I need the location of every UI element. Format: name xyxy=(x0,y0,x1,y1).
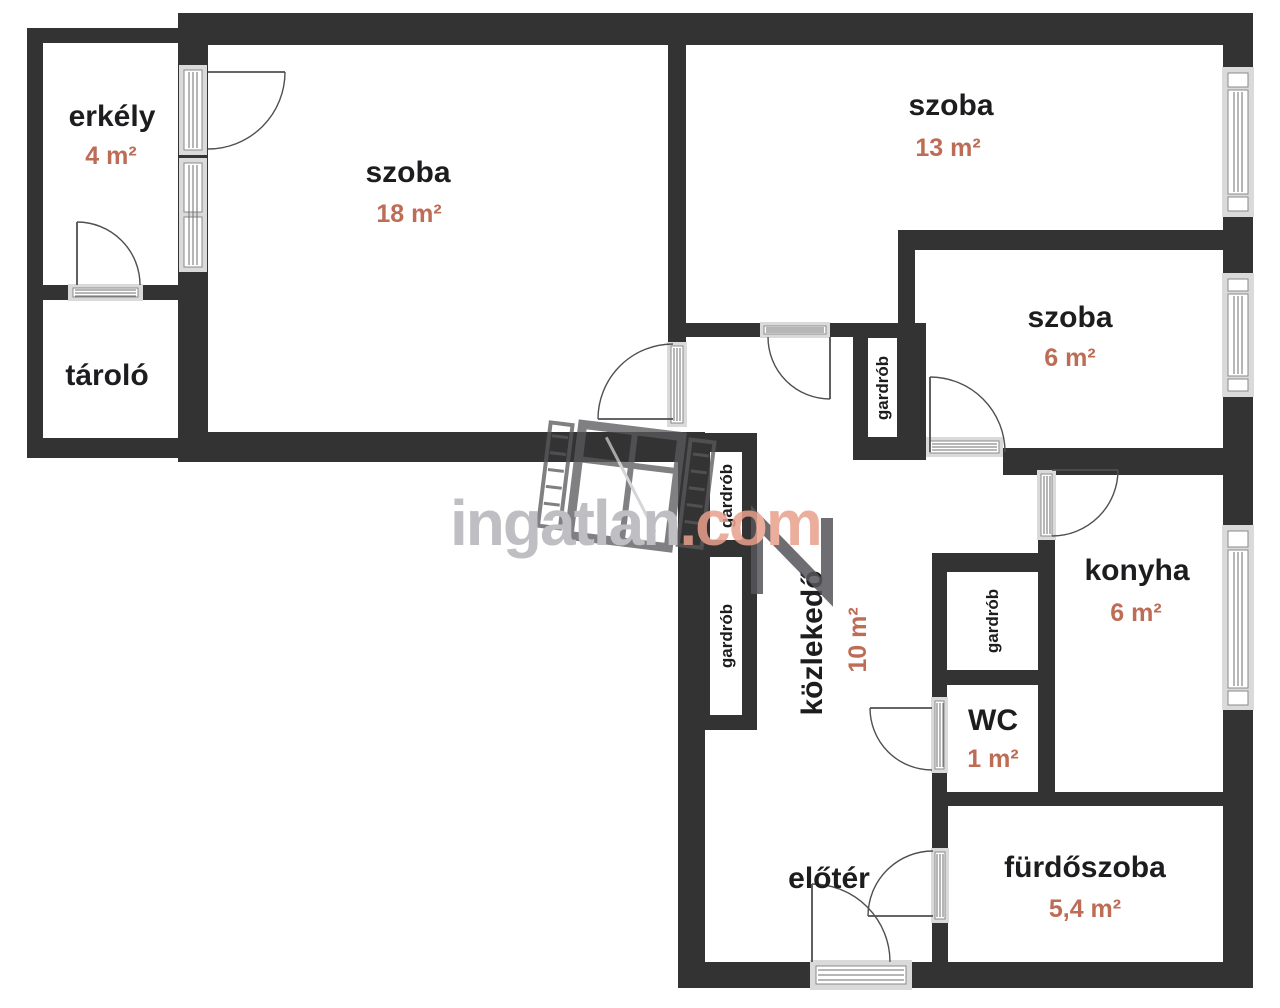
room-label-konyha: konyha xyxy=(1084,554,1189,587)
wall-tarolo-bottom xyxy=(27,438,178,458)
wall-erkely-left xyxy=(27,28,43,458)
szoba18-door-strip xyxy=(667,342,687,427)
room-label-eloter: előtér xyxy=(788,862,870,895)
wall-gardrob4-top xyxy=(932,553,1055,572)
furdo-door-strip xyxy=(931,848,949,923)
wall-szoba6-konyha xyxy=(1003,448,1223,475)
watermark-brand: ingatlan xyxy=(450,487,679,559)
konyha-door-strip xyxy=(1037,470,1056,540)
closet-label-4: gardrób xyxy=(983,589,1002,653)
wall-eloter-furdo xyxy=(932,923,948,962)
room-label-furdoszoba: fürdőszoba xyxy=(1004,851,1166,884)
watermark-tld: .com xyxy=(679,487,820,559)
room-area-erkely: 4 m² xyxy=(85,142,136,170)
szoba13-window xyxy=(1222,67,1254,217)
wall-right xyxy=(1223,217,1253,273)
konyha-window xyxy=(1222,525,1254,710)
wall-bottom xyxy=(912,962,1253,988)
furdo-door-arc xyxy=(868,851,933,916)
room-area-wc: 1 m² xyxy=(967,745,1018,773)
wall-gardrob4-wc xyxy=(932,670,1055,685)
room-area-konyha: 6 m² xyxy=(1110,599,1161,627)
balcony-window xyxy=(179,158,207,272)
wall-erkely-top xyxy=(27,28,178,43)
wall-right xyxy=(1223,397,1253,525)
szoba13-door-arc xyxy=(768,337,830,399)
wall-hall-right xyxy=(932,773,947,792)
szoba13-door-strip xyxy=(760,322,830,338)
room-area-furdoszoba: 5,4 m² xyxy=(1049,895,1121,923)
wall-wc-furdo xyxy=(932,792,1223,806)
balcony-door-arc xyxy=(208,72,285,149)
room-area-szoba18: 18 m² xyxy=(376,200,441,228)
closet-label-3: gardrób xyxy=(717,604,736,668)
wall-right xyxy=(1223,710,1253,988)
wc-door-strip xyxy=(931,697,948,773)
wall-szoba13-szoba6 xyxy=(898,230,1223,250)
room-label-szoba6: szoba xyxy=(1027,301,1112,334)
watermark-text: ingatlan.com xyxy=(450,487,821,559)
szoba18-door-arc xyxy=(598,344,673,419)
szoba6-window xyxy=(1222,273,1254,397)
szoba6-door-strip xyxy=(926,437,1003,457)
wall-right xyxy=(1223,13,1253,67)
room-label-szoba13: szoba xyxy=(908,89,993,122)
entry-door-strip xyxy=(810,960,912,990)
room-label-erkely: erkély xyxy=(69,100,156,133)
wall-szoba18-bottom xyxy=(178,432,705,462)
closet-label-1: gardrób xyxy=(873,356,892,420)
room-area-szoba13: 13 m² xyxy=(915,134,980,162)
wall-top xyxy=(178,13,1253,45)
room-label-wc: WC xyxy=(968,704,1018,737)
entry-door-arc xyxy=(812,884,890,962)
floorplan-canvas: erkély 4 m² szoba 18 m² szoba 13 m² szob… xyxy=(0,0,1280,1008)
room-label-szoba18: szoba xyxy=(365,156,450,189)
wall-szoba13-bottom xyxy=(686,323,760,337)
wall-szoba18-szoba13 xyxy=(668,45,686,342)
balcony-door-strip xyxy=(179,65,207,155)
room-area-szoba6: 6 m² xyxy=(1044,344,1095,372)
konyha-door-arc xyxy=(1052,470,1118,536)
tarolo-window xyxy=(68,284,143,301)
wc-door-arc xyxy=(870,708,932,770)
room-area-kozlekedo: 10 m² xyxy=(844,607,872,672)
room-label-tarolo: tároló xyxy=(65,359,148,392)
wall-konyha-left xyxy=(1038,540,1055,792)
erkely-inner-door-arc xyxy=(77,222,140,285)
